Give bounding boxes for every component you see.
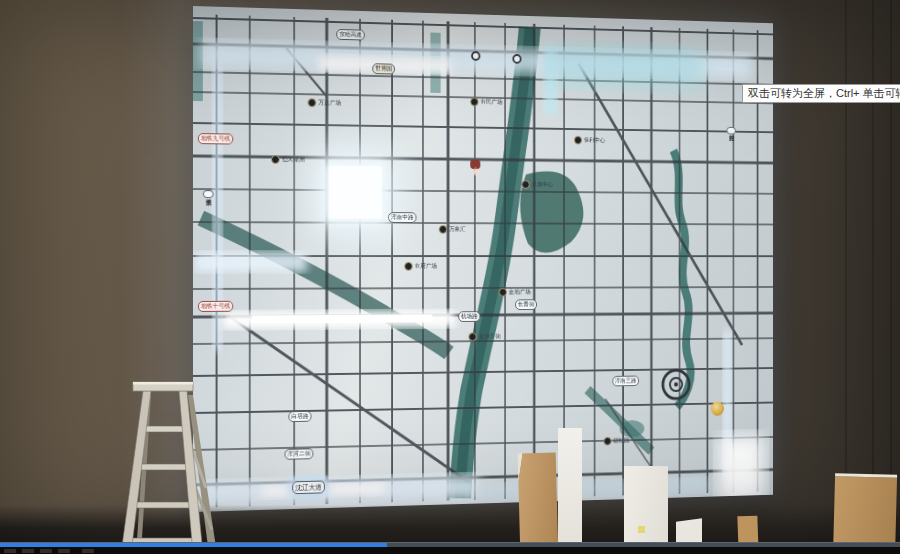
fullscreen-tooltip: 双击可转为全屏，Ctrl+ 单击可转为: [742, 84, 900, 103]
cropped-caption-artifact: [22, 549, 34, 553]
metro-line-label: 地铁九号线: [198, 133, 233, 144]
poi-icon: [404, 262, 412, 271]
road-label-vertical: 世纪路: [727, 127, 737, 135]
road-label: 浑南三路: [612, 376, 639, 387]
avenue-label-vertical: 金廊大道: [470, 159, 480, 169]
packing-board: [518, 453, 559, 554]
road-label: 京哈高速: [336, 29, 364, 41]
stepladder: [105, 368, 235, 554]
video-player-frame[interactable]: 京哈高速 世博园 白塔路 浑河二街 沈辽大道 机场路 长青街 浑南三路 于洪大道…: [0, 0, 900, 554]
packing-board: [624, 466, 668, 554]
poi-marker: 碧桂园: [604, 436, 630, 445]
poi-icon: [522, 180, 530, 189]
road-label: 浑河二街: [285, 448, 314, 460]
sticker: [638, 526, 645, 533]
cropped-caption-artifact: [82, 549, 94, 553]
poi-marker: 市府广场: [404, 262, 437, 271]
poi-marker: 龙湖天街: [468, 332, 500, 341]
poi-marker: 市民广场: [470, 97, 502, 106]
poi-icon: [468, 332, 476, 341]
poi-marker: 恒大绿洲: [271, 155, 305, 164]
road-label: 浑南中路: [388, 212, 416, 223]
road-label: 世博园: [372, 63, 395, 74]
road-label-vertical: 于洪大道: [203, 190, 214, 198]
poi-icon: [574, 136, 582, 145]
poi-icon: [470, 97, 478, 106]
road-label: 长青街: [515, 299, 537, 310]
poi-icon: [308, 98, 317, 107]
poi-icon: [439, 225, 447, 234]
cropped-caption-artifact: [58, 549, 70, 553]
poi-marker: 万象汇: [439, 225, 466, 234]
illuminated-map-panel: 京哈高速 世博园 白塔路 浑河二街 沈辽大道 机场路 长青街 浑南三路 于洪大道…: [193, 6, 773, 512]
station-icon: [471, 51, 480, 61]
poi-icon: [499, 288, 507, 297]
road-label: 白塔路: [288, 411, 311, 422]
cropped-caption-artifact: [40, 549, 52, 553]
poi-icon: [271, 155, 280, 164]
poi-marker: 保利中心: [574, 136, 605, 145]
cropped-caption-artifact: [4, 549, 16, 553]
poi-marker: 金地广场: [499, 288, 531, 297]
packing-board: [558, 428, 582, 554]
metro-line-label: 地铁十号线: [198, 301, 233, 312]
road-label: 机场路: [458, 311, 480, 322]
road-label: 沈辽大道: [292, 481, 325, 495]
video-bottom-bar[interactable]: [0, 547, 900, 554]
map-artwork: [193, 6, 773, 512]
station-icon: [512, 54, 521, 64]
project-location-glow: [329, 166, 382, 219]
poi-icon: [604, 437, 612, 446]
poi-marker: 万达广场: [308, 98, 341, 107]
poi-marker: 奥体中心: [522, 180, 554, 189]
